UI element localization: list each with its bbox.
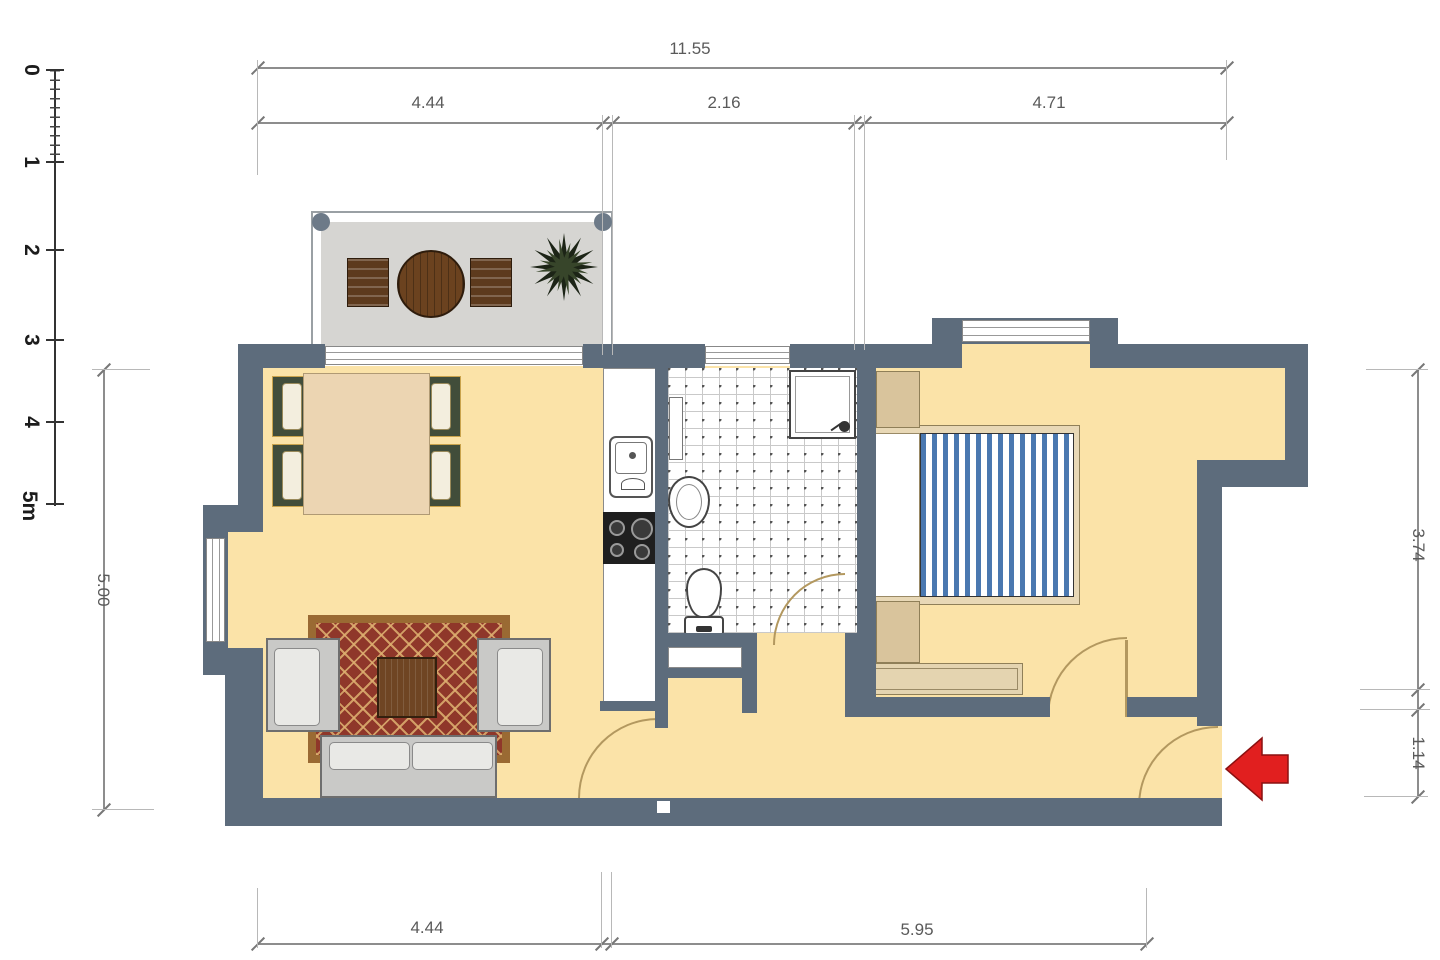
dim-label-right-lower: 1.14 — [1408, 736, 1428, 769]
wall-bath-right — [857, 368, 876, 633]
wall-bottom — [225, 798, 1222, 826]
floor-plan: 0 1 2 3 4 5m 11.55 4.44 2.16 4.71 5.00 3… — [0, 0, 1440, 960]
cooktop — [603, 512, 658, 564]
kitchen-sink — [609, 436, 653, 498]
bench — [866, 663, 1023, 695]
window-living — [325, 346, 583, 365]
plant — [529, 232, 599, 302]
dim-line-bottom — [258, 943, 1147, 945]
entrance-arrow — [1222, 733, 1292, 805]
floor-left-window-bay — [228, 532, 263, 648]
toilet — [684, 568, 724, 636]
sofa-cushion — [329, 742, 410, 770]
ruler-label: 4 — [19, 416, 43, 428]
radiator — [669, 397, 683, 460]
wall-left-bay-cap — [203, 648, 263, 675]
dim-label-top-segment: 2.16 — [707, 93, 740, 113]
dining-chair — [272, 444, 305, 507]
ruler-label: 5m — [17, 491, 41, 521]
dim-line-top-segments — [258, 122, 1227, 124]
dining-chair — [428, 376, 461, 437]
ruler-label: 1 — [19, 156, 43, 168]
sofa — [320, 735, 497, 798]
wall-left-upper — [238, 344, 263, 532]
wall-stub-mid — [742, 633, 757, 713]
wall-left-bay-cap — [203, 505, 263, 532]
dim-label-top-segment: 4.71 — [1032, 93, 1065, 113]
ruler-label: 0 — [19, 64, 43, 76]
dining-table — [303, 373, 430, 515]
bedside-cabinet — [876, 371, 920, 428]
dining-chair — [428, 444, 461, 507]
wall-left-lower — [225, 675, 263, 806]
balcony-chair — [470, 258, 512, 307]
wall-stub-right — [845, 633, 876, 697]
dim-label-right-upper: 3.74 — [1408, 528, 1428, 561]
counter-end-cap — [600, 701, 662, 711]
wall-niche-bottom — [668, 668, 742, 678]
window-bedroom — [962, 320, 1090, 342]
wall-bedroom-hall — [845, 697, 1050, 717]
dining-chair — [272, 376, 305, 437]
wall-right-step — [1197, 460, 1308, 487]
wall-top — [1090, 344, 1308, 368]
wall-top — [790, 344, 962, 368]
window-bathroom — [705, 346, 790, 364]
floor-bedroom-right — [1197, 366, 1285, 462]
bed-blanket — [920, 433, 1074, 597]
balcony-table — [397, 250, 465, 318]
wall-right-lower — [1197, 487, 1222, 726]
dim-label-top-total: 11.55 — [669, 39, 710, 59]
door-threshold-notch — [657, 801, 670, 813]
dim-label-bottom-left: 4.44 — [410, 918, 443, 938]
armchair — [477, 638, 551, 732]
armchair — [266, 638, 340, 732]
wall-bedroom-hall — [1127, 697, 1197, 717]
duct-niche — [668, 647, 742, 668]
dim-label-bottom-right: 5.95 — [900, 920, 933, 940]
wall-kitchen-bath — [655, 368, 668, 728]
ruler-label: 2 — [19, 244, 43, 256]
window-left-bay — [206, 538, 225, 642]
dim-label-left: 5.00 — [93, 573, 113, 606]
sofa-cushion — [412, 742, 493, 770]
ruler-label: 3 — [19, 334, 43, 346]
floor-bedroom-window-bay — [962, 344, 1090, 368]
bed-pillow — [874, 433, 920, 597]
balcony-chair — [347, 258, 389, 307]
dim-line-top-total — [258, 67, 1227, 69]
dim-label-top-segment: 4.44 — [411, 93, 444, 113]
coffee-table — [377, 657, 437, 718]
shower — [789, 370, 856, 439]
balcony-post — [594, 213, 612, 231]
dim-line-right — [1417, 370, 1419, 797]
balcony-post — [312, 213, 330, 231]
bedside-cabinet — [876, 601, 920, 663]
